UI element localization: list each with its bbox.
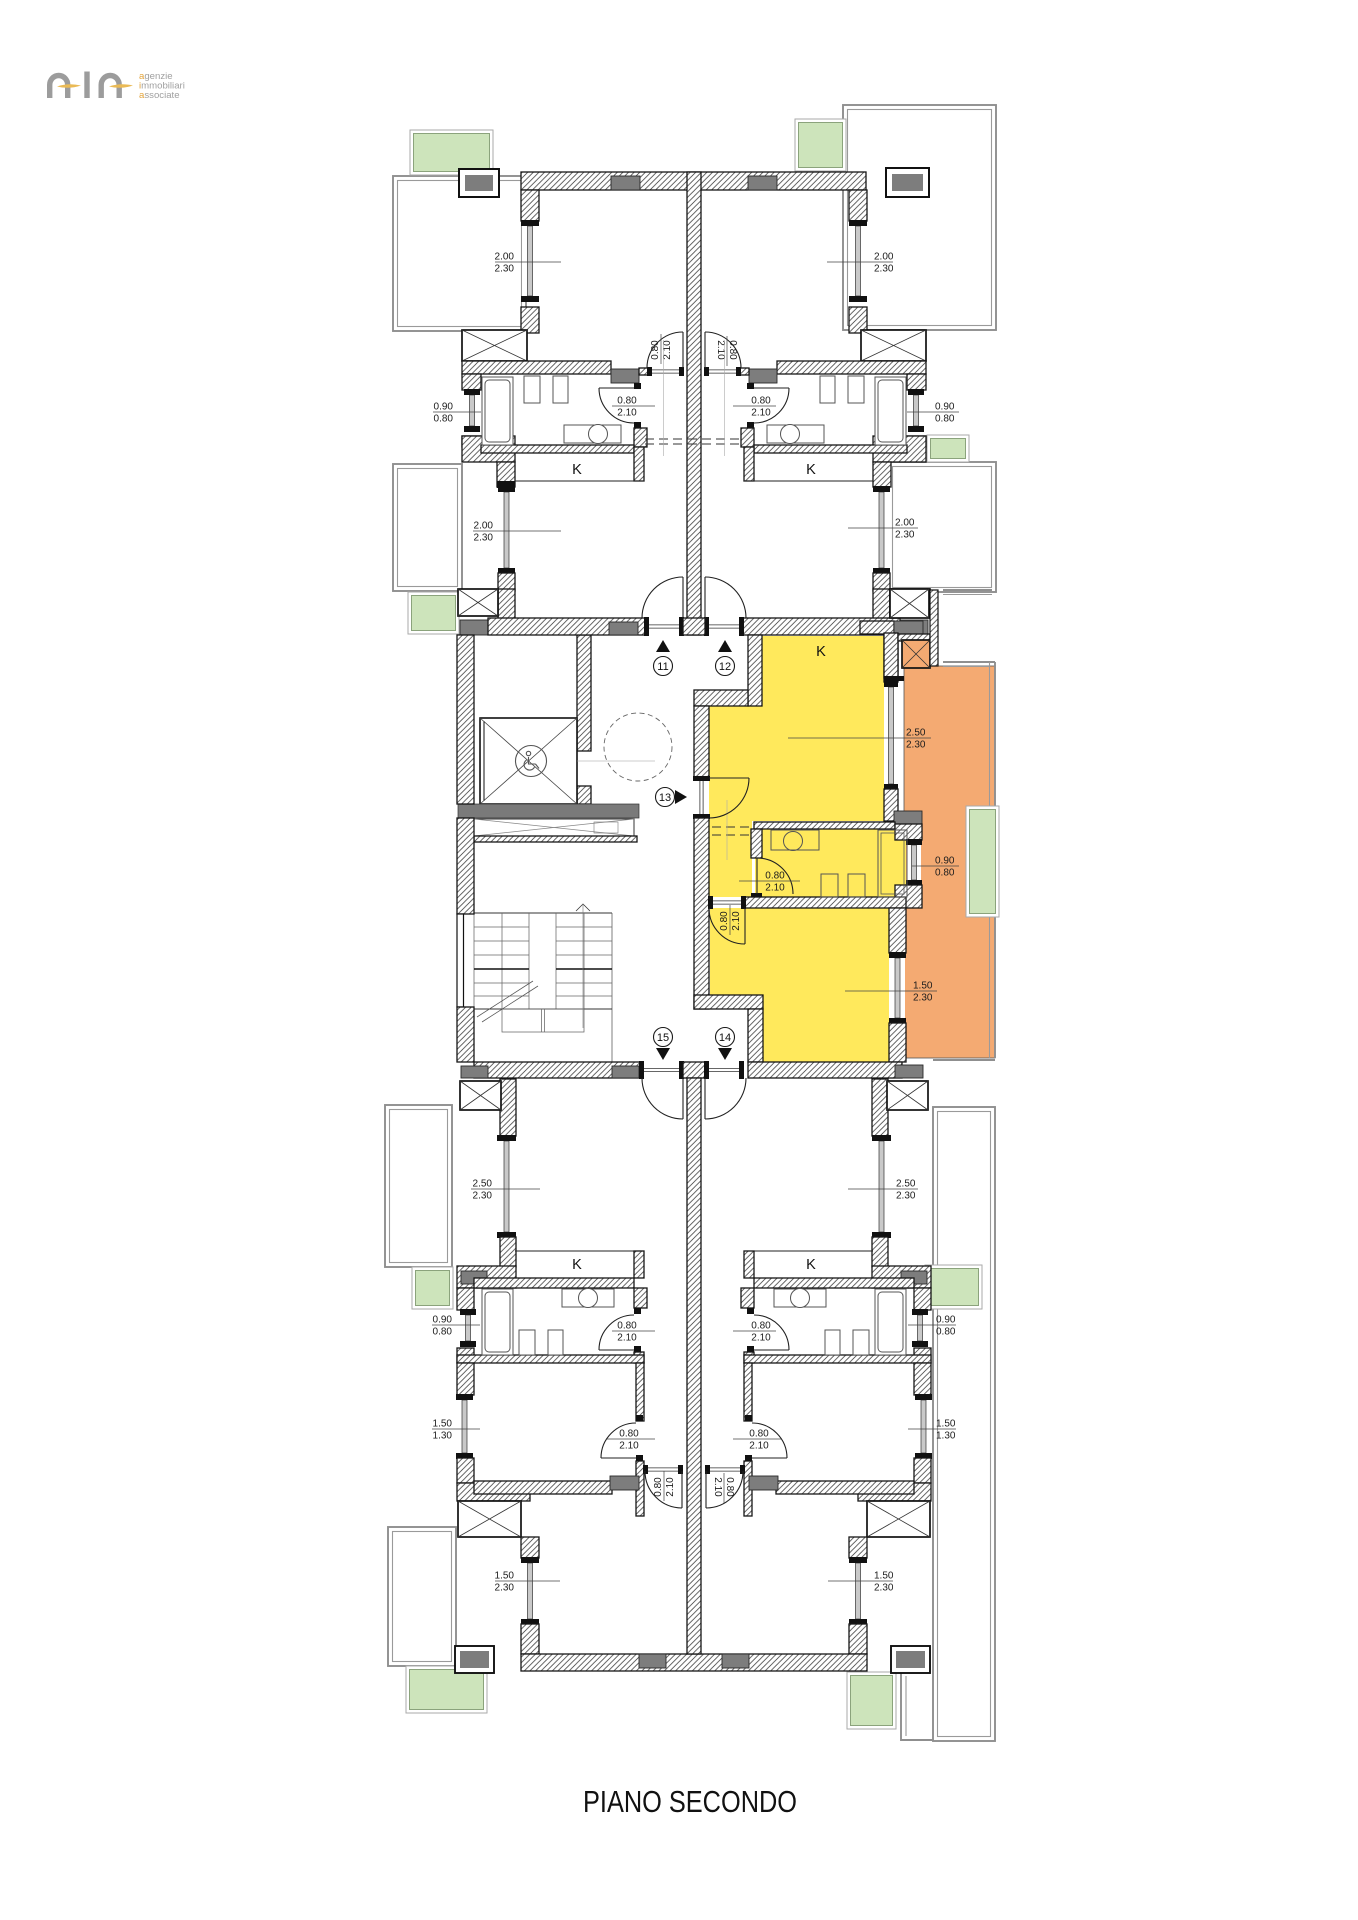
svg-text:13: 13 [659,792,671,804]
svg-text:PIANO SECONDO: PIANO SECONDO [583,1784,797,1819]
svg-text:2.30: 2.30 [895,530,915,541]
svg-text:2.10: 2.10 [619,1441,639,1452]
svg-text:2.30: 2.30 [474,533,494,544]
svg-text:0.80: 0.80 [433,1327,453,1338]
svg-text:2.50: 2.50 [906,728,926,739]
svg-text:2.30: 2.30 [906,740,926,751]
svg-text:2.10: 2.10 [617,1333,637,1344]
svg-text:1.30: 1.30 [433,1431,453,1442]
svg-text:2.10: 2.10 [751,1333,771,1344]
svg-text:0.80: 0.80 [434,414,454,425]
svg-text:0.80: 0.80 [653,1477,664,1497]
svg-text:0.80: 0.80 [617,1321,637,1332]
svg-text:2.10: 2.10 [665,1477,676,1497]
svg-text:12: 12 [719,661,731,673]
svg-text:0.80: 0.80 [749,1429,769,1440]
svg-text:2.50: 2.50 [473,1179,493,1190]
svg-text:2.30: 2.30 [874,264,894,275]
svg-text:2.30: 2.30 [913,993,933,1004]
svg-text:0.80: 0.80 [619,1429,639,1440]
svg-text:1.50: 1.50 [936,1419,956,1430]
svg-text:0.80: 0.80 [719,911,730,931]
svg-text:2.10: 2.10 [749,1441,769,1452]
svg-text:0.80: 0.80 [617,396,637,407]
svg-text:2.10: 2.10 [712,1477,723,1497]
svg-text:0.80: 0.80 [765,871,785,882]
svg-text:K: K [806,462,816,478]
svg-text:0.80: 0.80 [727,340,738,360]
svg-text:K: K [806,1257,816,1273]
svg-text:0.80: 0.80 [650,340,661,360]
svg-text:2.00: 2.00 [495,252,515,263]
svg-text:2.50: 2.50 [896,1179,916,1190]
svg-text:K: K [816,644,826,660]
svg-text:1.50: 1.50 [495,1571,515,1582]
svg-text:2.30: 2.30 [495,264,515,275]
svg-text:0.80: 0.80 [936,1327,956,1338]
svg-text:associate: associate [139,90,180,101]
svg-text:2.10: 2.10 [731,911,742,931]
svg-text:0.80: 0.80 [935,414,955,425]
svg-text:0.90: 0.90 [434,402,454,413]
svg-text:1.30: 1.30 [936,1431,956,1442]
svg-text:2.00: 2.00 [874,252,894,263]
svg-text:2.30: 2.30 [896,1191,916,1202]
svg-text:15: 15 [657,1032,669,1044]
svg-text:2.30: 2.30 [473,1191,493,1202]
svg-text:1.50: 1.50 [874,1571,894,1582]
svg-text:0.80: 0.80 [935,868,955,879]
svg-text:2.10: 2.10 [751,408,771,419]
svg-text:11: 11 [657,661,668,673]
svg-text:0.80: 0.80 [724,1477,735,1497]
svg-text:2.30: 2.30 [874,1583,894,1594]
svg-text:2.10: 2.10 [617,408,637,419]
svg-text:0.80: 0.80 [751,1321,771,1332]
svg-text:14: 14 [719,1032,731,1044]
svg-text:0.80: 0.80 [751,396,771,407]
svg-text:1.50: 1.50 [913,981,933,992]
svg-text:2.30: 2.30 [495,1583,515,1594]
svg-text:K: K [572,1257,582,1273]
svg-text:2.00: 2.00 [895,518,915,529]
svg-text:1.50: 1.50 [433,1419,453,1430]
svg-text:0.90: 0.90 [936,1315,956,1326]
svg-text:0.90: 0.90 [935,856,955,867]
svg-text:2.00: 2.00 [474,521,494,532]
svg-text:0.90: 0.90 [433,1315,453,1326]
svg-text:0.90: 0.90 [935,402,955,413]
svg-text:K: K [572,462,582,478]
svg-text:2.10: 2.10 [765,883,785,894]
